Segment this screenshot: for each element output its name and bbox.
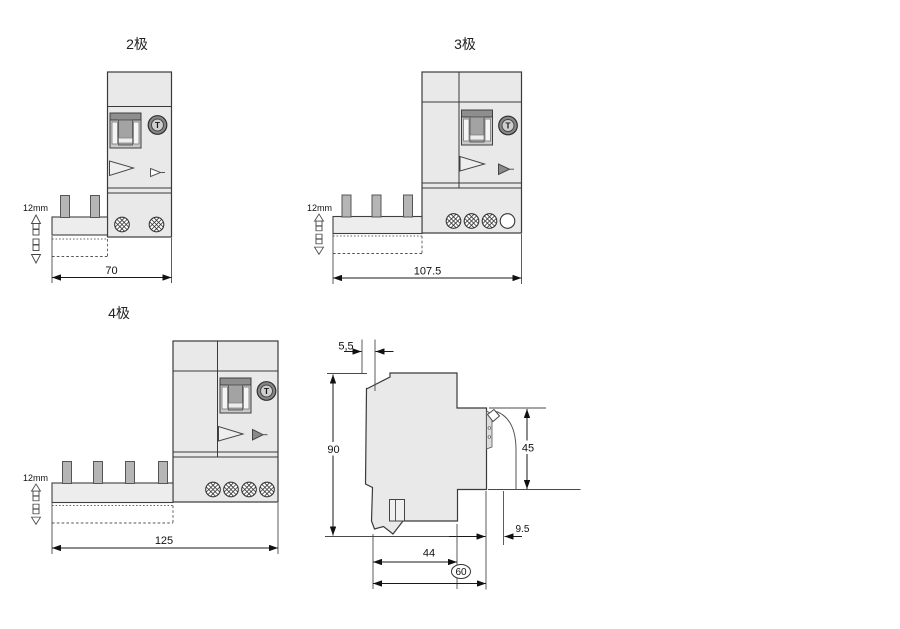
toggle-switch-icon (220, 378, 251, 413)
side-height-label: 90 (327, 444, 339, 456)
screw-terminal-icon (260, 482, 275, 497)
screw-terminal-icon (482, 214, 497, 229)
din-clip-slider (390, 500, 405, 522)
pole4-breaker-body (173, 341, 278, 502)
busbar-pin (61, 196, 70, 218)
side-front-height-label: 45 (522, 443, 534, 455)
pole3-width-dimension-label: 107.5 (414, 266, 442, 278)
test-button-icon (148, 116, 167, 135)
pole4-width-dimension-label: 125 (155, 535, 173, 547)
screw-terminal-icon (446, 214, 461, 229)
busbar-pin (91, 196, 100, 218)
test-button-icon (257, 382, 276, 401)
busbar-pin (126, 462, 135, 484)
screw-terminal-icon (464, 214, 479, 229)
busbar-pitch-arrow-icon (32, 484, 41, 524)
neutral-terminal-icon (500, 214, 515, 229)
pole2-busbar-pitch-label: 12mm (23, 203, 48, 213)
screw-terminal-icon (149, 217, 164, 232)
busbar-pin (63, 462, 72, 484)
dimension-drawings: T 2极 (0, 0, 900, 629)
pole4-front-view: 4极 125 12mm (23, 305, 278, 554)
busbar-pin (404, 195, 413, 217)
busbar-pin (372, 195, 381, 217)
busbar-comb (333, 217, 422, 234)
screw-terminal-icon (242, 482, 257, 497)
pole3-busbar-pitch-label: 12mm (307, 203, 332, 213)
pole2-front-view: 2极 70 12mm (23, 36, 172, 283)
pole2-width-dimension-label: 70 (105, 265, 117, 277)
technical-drawing-canvas: T 2极 (0, 0, 900, 629)
side-profile-body (366, 373, 487, 534)
toggle-switch-icon (462, 110, 493, 145)
side-view: 5,5 90 45 9.5 44 (325, 340, 581, 590)
test-button-icon (499, 116, 518, 135)
wire-bend-curve (497, 412, 517, 490)
screw-terminal-icon (224, 482, 239, 497)
side-rear-offset-label: 9.5 (516, 524, 530, 535)
pole3-title: 3极 (454, 36, 476, 52)
terminal-clamp-icon (487, 410, 500, 450)
screw-terminal-icon (115, 217, 130, 232)
toggle-switch-icon (110, 113, 141, 148)
pole2-title: 2极 (126, 36, 148, 52)
busbar-pin (94, 462, 103, 484)
pole4-title: 4极 (108, 305, 130, 321)
busbar-comb (52, 483, 173, 503)
screw-terminal-icon (206, 482, 221, 497)
pole4-busbar-pitch-label: 12mm (23, 473, 48, 483)
busbar-pitch-arrow-icon (315, 214, 324, 254)
side-front-lip-label: 5,5 (338, 341, 353, 353)
busbar-pitch-arrow-icon (32, 215, 41, 263)
side-depth-label: 44 (423, 548, 435, 560)
pole3-breaker-body (422, 72, 522, 233)
busbar-pin (342, 195, 351, 217)
busbar-pin (159, 462, 168, 484)
side-total-depth-label: 60 (455, 567, 467, 578)
busbar-comb (52, 217, 108, 235)
pole2-breaker-body (108, 72, 172, 237)
pole3-front-view: 3极 107.5 12mm (307, 36, 522, 284)
